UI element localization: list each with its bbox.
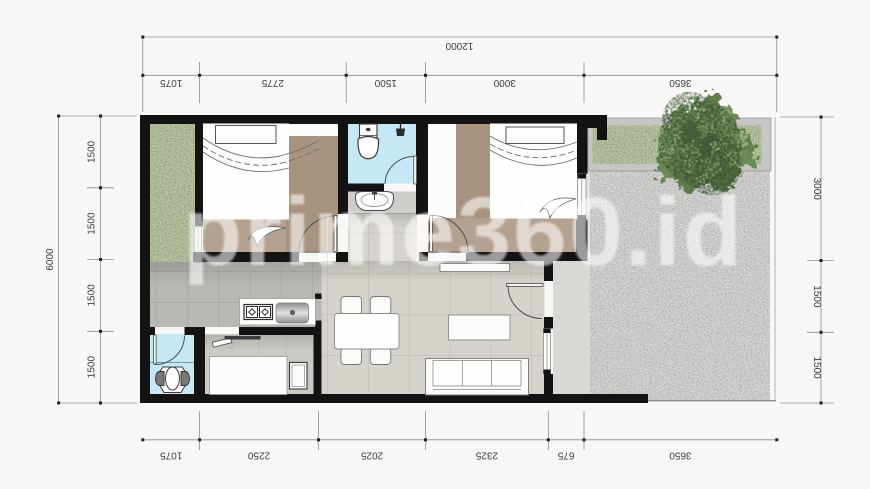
svg-text:2775: 2775 [261, 77, 284, 88]
svg-text:1500: 1500 [87, 212, 98, 235]
svg-text:1500: 1500 [374, 77, 397, 88]
svg-text:1075: 1075 [160, 77, 183, 88]
svg-text:1500: 1500 [87, 356, 98, 379]
svg-text:1075: 1075 [160, 450, 183, 461]
svg-text:12000: 12000 [445, 40, 473, 51]
svg-text:1500: 1500 [87, 140, 98, 163]
svg-text:2025: 2025 [360, 450, 383, 461]
svg-text:675: 675 [557, 450, 574, 461]
svg-text:2250: 2250 [247, 450, 270, 461]
svg-text:prime360.id: prime360.id [183, 177, 744, 286]
svg-text:6000: 6000 [45, 248, 56, 271]
svg-text:3000: 3000 [493, 77, 516, 88]
svg-text:3650: 3650 [669, 450, 692, 461]
svg-text:2325: 2325 [475, 450, 498, 461]
svg-text:1500: 1500 [811, 356, 822, 379]
svg-text:1500: 1500 [811, 285, 822, 308]
svg-text:3000: 3000 [811, 178, 822, 201]
svg-text:3650: 3650 [669, 77, 692, 88]
svg-text:1500: 1500 [87, 284, 98, 307]
